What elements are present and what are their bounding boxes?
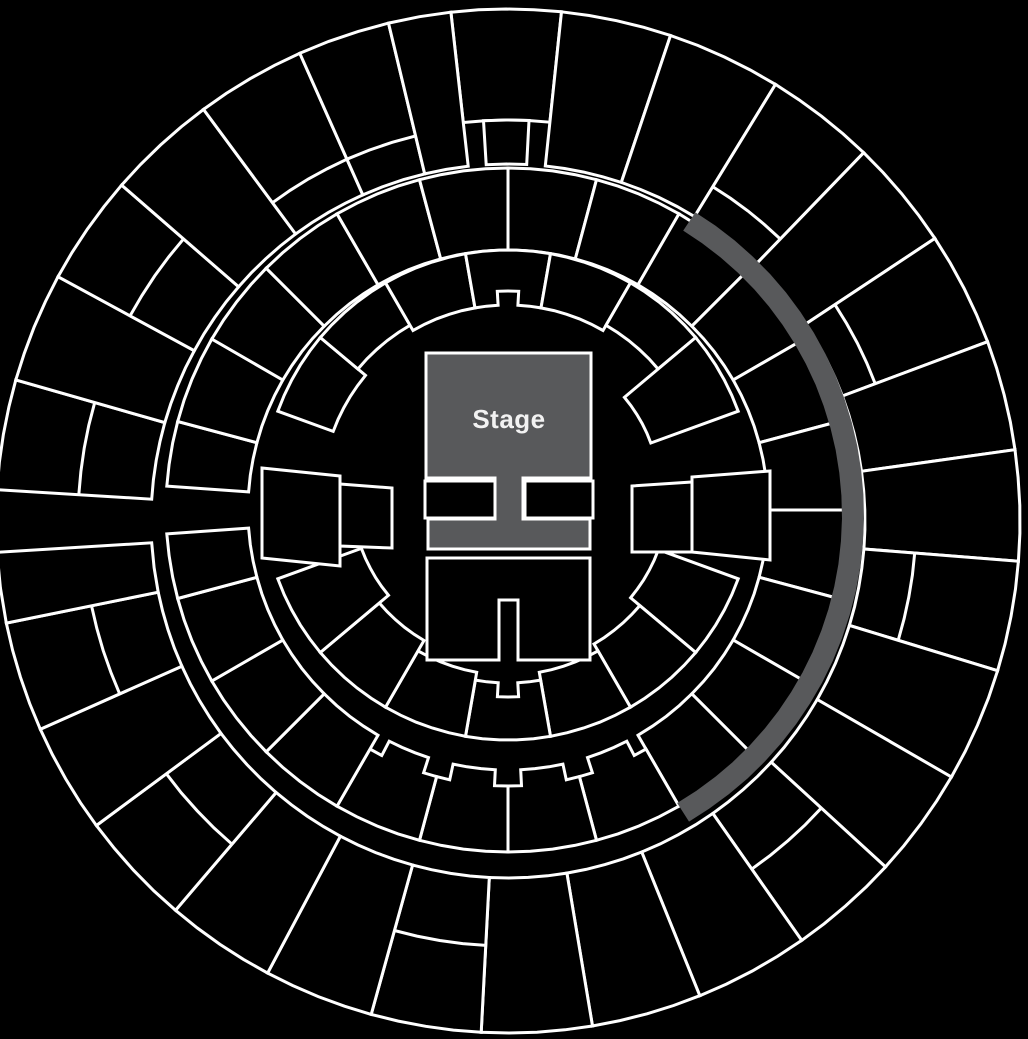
side-box-west-1[interactable] [262, 468, 340, 566]
side-box-west-2[interactable] [340, 484, 392, 548]
venue-seating-map: Stage [0, 0, 1028, 1039]
floor-box-right[interactable] [525, 481, 593, 518]
side-box-east-2[interactable] [692, 471, 770, 560]
stage-block [426, 353, 591, 549]
outer-ring-section[interactable] [451, 9, 562, 123]
lower-bowl-section[interactable] [466, 680, 551, 740]
seating-map-canvas: Stage [0, 0, 1028, 1039]
floor-box-left[interactable] [425, 481, 495, 518]
side-box-east-1[interactable] [632, 482, 692, 552]
floor-rear[interactable] [427, 558, 590, 660]
lower-bowl-section[interactable] [466, 250, 551, 308]
outer-ring-section[interactable] [484, 120, 530, 165]
stage-label: Stage [472, 404, 545, 434]
